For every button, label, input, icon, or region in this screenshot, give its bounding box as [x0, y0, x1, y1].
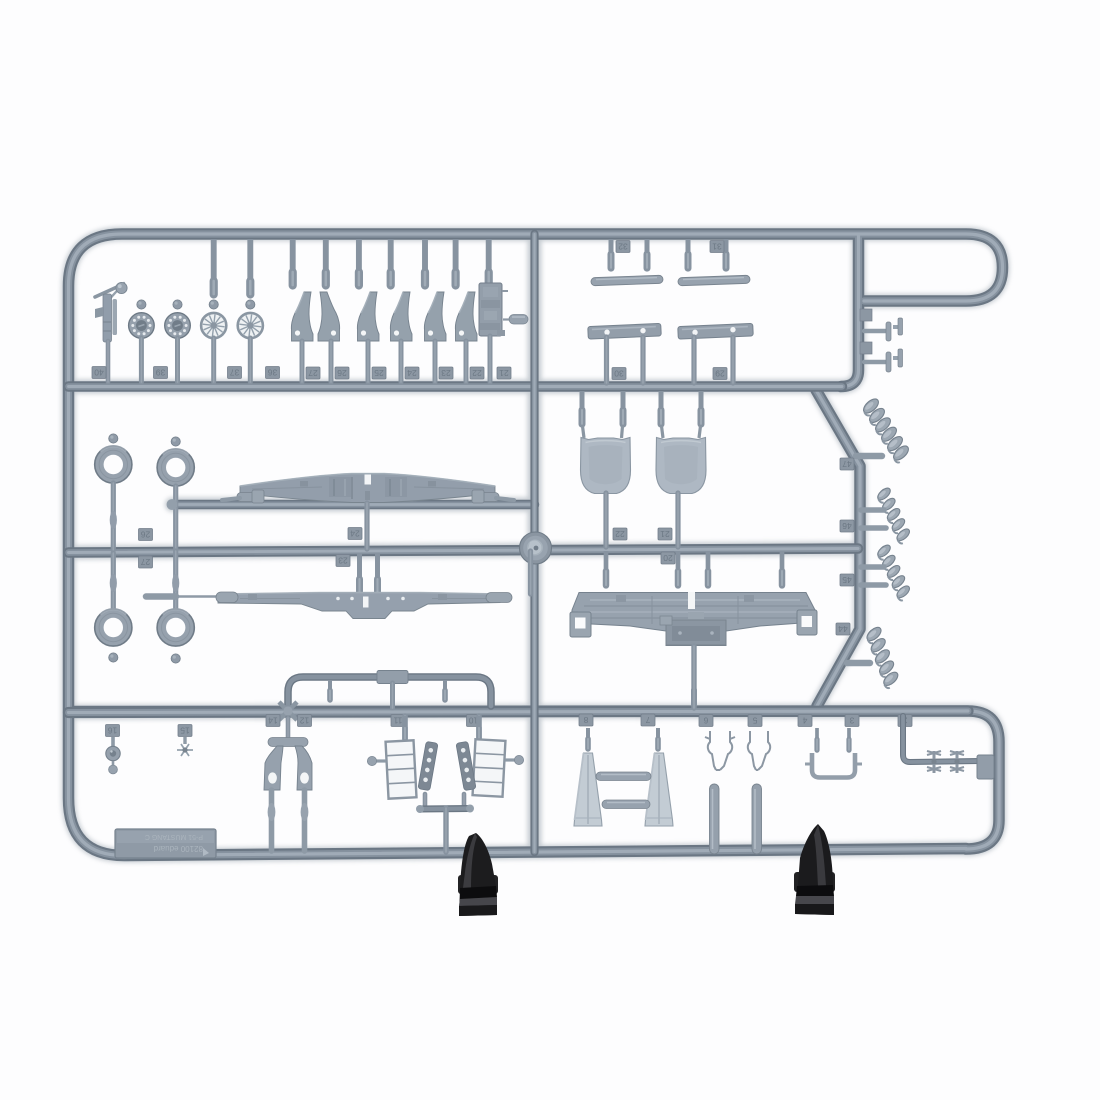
svg-text:4: 4 — [802, 716, 807, 726]
svg-text:23: 23 — [441, 368, 451, 378]
svg-text:36: 36 — [268, 368, 278, 378]
svg-text:25: 25 — [374, 368, 384, 378]
svg-text:37: 37 — [230, 368, 240, 378]
svg-text:26: 26 — [337, 368, 347, 378]
svg-text:15: 15 — [180, 726, 190, 736]
svg-text:20: 20 — [663, 553, 673, 563]
svg-text:16: 16 — [108, 726, 118, 736]
svg-text:39: 39 — [156, 368, 166, 378]
svg-text:21: 21 — [660, 529, 670, 539]
svg-text:31: 31 — [712, 242, 722, 252]
svg-text:3: 3 — [849, 716, 854, 726]
svg-text:40: 40 — [94, 368, 104, 378]
svg-text:82100 eduard: 82100 eduard — [154, 844, 203, 853]
svg-text:22: 22 — [615, 529, 625, 539]
svg-text:12: 12 — [300, 716, 310, 726]
svg-text:26: 26 — [141, 530, 151, 540]
svg-text:22: 22 — [472, 368, 482, 378]
svg-text:47: 47 — [842, 459, 852, 469]
svg-text:44: 44 — [838, 624, 848, 634]
svg-text:11: 11 — [393, 716, 402, 726]
svg-text:7: 7 — [645, 715, 650, 725]
svg-text:29: 29 — [715, 369, 725, 379]
svg-text:27: 27 — [141, 557, 151, 567]
svg-text:6: 6 — [703, 716, 708, 726]
svg-text:32: 32 — [618, 242, 628, 252]
svg-text:45: 45 — [842, 575, 852, 585]
svg-text:24: 24 — [350, 529, 360, 539]
svg-text:P-51 MUSTANG C: P-51 MUSTANG C — [145, 833, 203, 840]
svg-text:21: 21 — [499, 368, 509, 378]
svg-text:46: 46 — [842, 521, 852, 531]
svg-text:27: 27 — [308, 368, 318, 378]
svg-text:24: 24 — [407, 368, 417, 378]
svg-text:23: 23 — [338, 556, 348, 566]
svg-text:14: 14 — [268, 716, 278, 726]
svg-text:30: 30 — [614, 369, 624, 379]
svg-text:8: 8 — [583, 715, 588, 725]
svg-text:5: 5 — [752, 716, 757, 726]
